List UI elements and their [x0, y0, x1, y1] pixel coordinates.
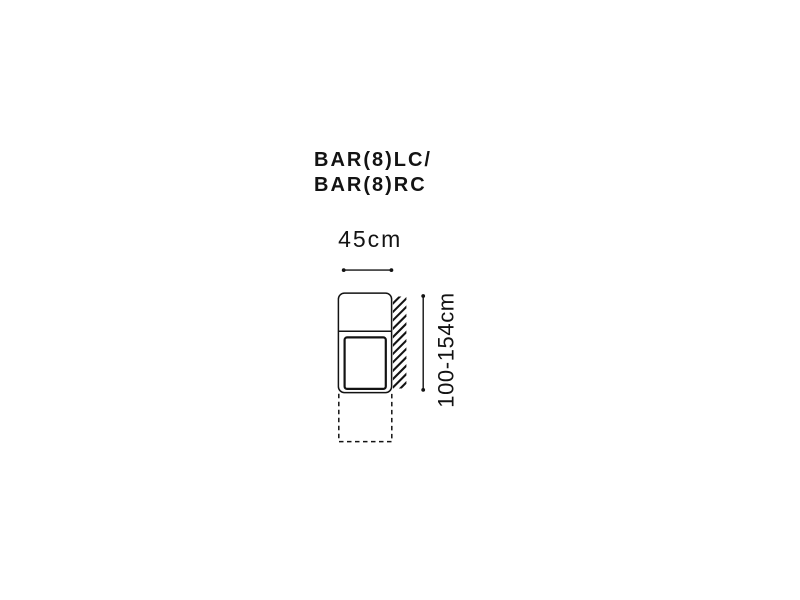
svg-text:45cm: 45cm	[338, 226, 402, 252]
svg-text:100-154cm: 100-154cm	[434, 292, 459, 407]
svg-text:BAR(8)LC/: BAR(8)LC/	[314, 149, 432, 171]
svg-text:BAR(8)RC: BAR(8)RC	[314, 174, 427, 196]
